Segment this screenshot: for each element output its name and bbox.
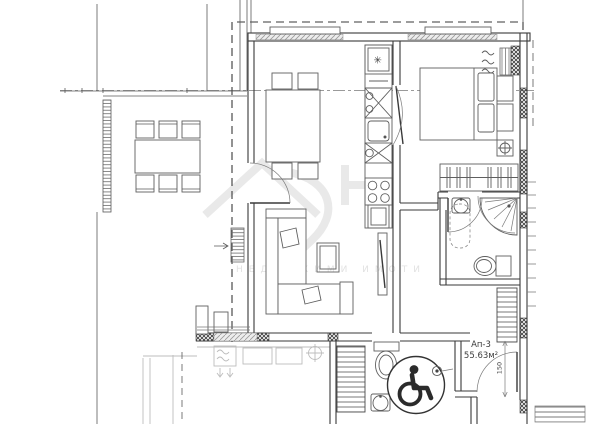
right-exterior-wall [520,33,585,424]
dining-chair [136,175,154,192]
apartment-info: Ап-3 55.63м² [464,340,498,361]
radiator-living [231,228,244,262]
shower-drain [507,204,510,207]
accessible-symbol [388,357,445,414]
nightstand [497,76,513,101]
stool-circle-cross-icon [497,140,513,156]
freezer-star-icon: ✳ [374,56,382,67]
faint-radiator [214,346,236,366]
floor-plan-canvas: НЕДВИЖИМИ ИМОТИ [0,0,600,424]
wc-shelves [337,346,365,412]
toilet [474,256,511,276]
wardrobe [440,164,518,191]
top-exterior-wall [248,27,530,41]
shower [478,196,517,235]
faint-arrows [217,368,233,377]
floor-plan-drawing: НЕДВИЖИМИ ИМОТИ [0,0,600,424]
living-dining-set [266,73,320,179]
window-lintel [425,27,491,34]
dining-chair [159,175,177,192]
bedroom-door [393,86,403,145]
small-dining-table [266,90,320,162]
entry-door-dimension: 150 [496,341,508,397]
tv-unit [378,233,387,295]
window-lintel [270,27,340,34]
radiator-bedroom [482,46,520,75]
terrace-hatch-strip [103,100,111,212]
dining-chair [159,121,177,138]
apartment-label: Ап-3 [471,340,491,350]
bathroom-door [448,198,482,248]
bedroom [393,46,520,191]
lower-floor-faint [143,344,330,424]
bed [420,68,497,140]
dining-table [135,140,200,173]
dining-chair [272,163,292,179]
sofa [266,209,353,314]
dining-chair [272,73,292,89]
dining-chair [182,175,200,192]
nightstand [497,104,513,131]
terrace-dining-area [103,100,200,212]
dimension-ticks [527,182,536,306]
entry-arrow-icon [214,243,228,249]
shower-fan-lines [485,198,517,231]
bathroom-sink [452,198,470,213]
dining-chair [136,121,154,138]
hall-closet [497,288,517,342]
dining-chair [298,163,318,179]
bathroom [448,196,517,276]
dining-chair [182,121,200,138]
dining-chair [298,73,318,89]
dimension-150-label: 150 [496,362,504,374]
closet-shelves [497,288,517,342]
accessible-wc [337,342,453,414]
window-living [256,34,343,40]
stair-strip [535,406,585,422]
wc-sink [371,394,390,411]
apartment-area-label: 55.63м² [464,351,498,361]
watermark-text: НЕДВИЖИМИ ИМОТИ [236,265,426,275]
door-leaf-panel [214,312,228,332]
kitchen: ✳ [365,45,392,228]
window-bedroom [408,34,497,40]
